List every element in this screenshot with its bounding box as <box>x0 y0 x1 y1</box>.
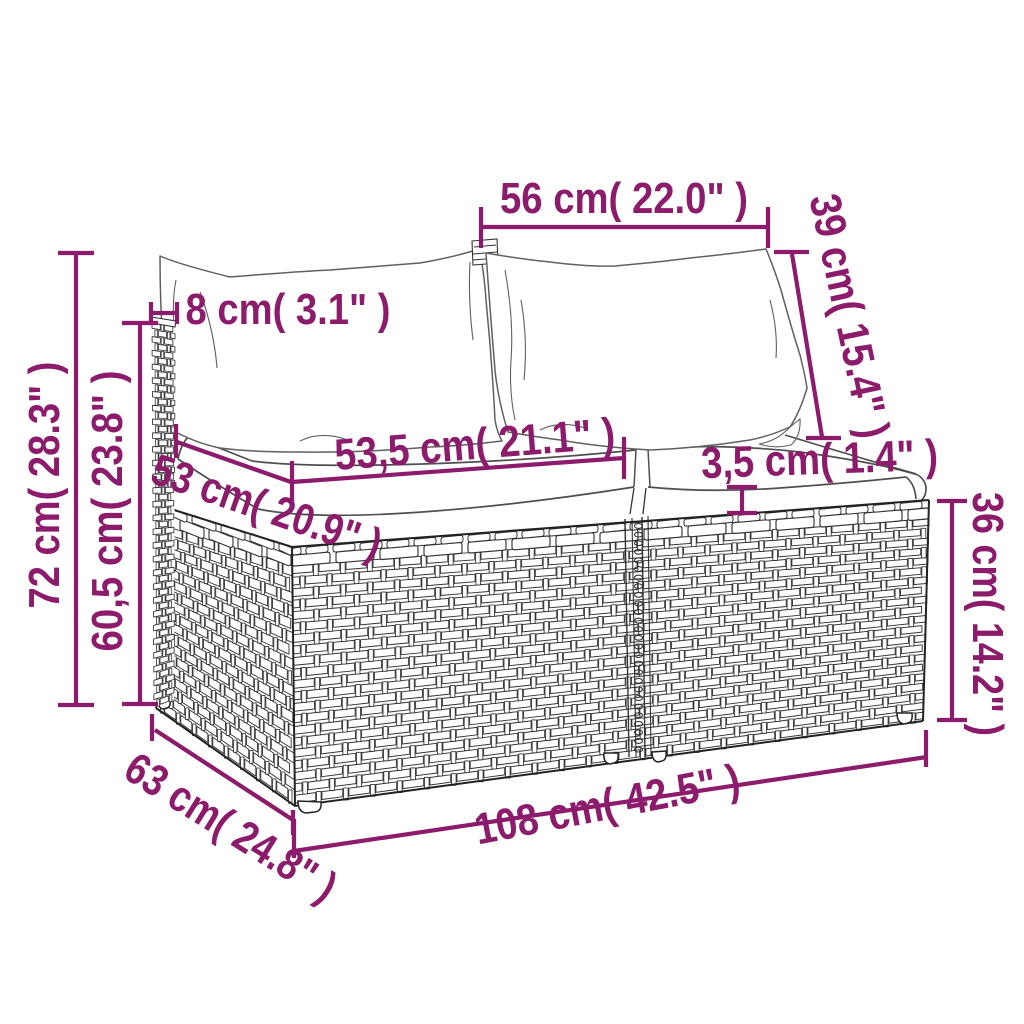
svg-text:3,5 cm( 1.4" ): 3,5 cm( 1.4" ) <box>700 431 939 488</box>
svg-text:36 cm( 14.2" ): 36 cm( 14.2" ) <box>963 492 1012 736</box>
svg-text:72 cm( 28.3" ): 72 cm( 28.3" ) <box>20 362 69 609</box>
svg-text:56 cm( 22.0" ): 56 cm( 22.0" ) <box>500 174 748 223</box>
svg-text:60,5 cm( 23.8" ): 60,5 cm( 23.8" ) <box>83 371 132 652</box>
svg-text:8 cm( 3.1" ): 8 cm( 3.1" ) <box>186 285 391 334</box>
